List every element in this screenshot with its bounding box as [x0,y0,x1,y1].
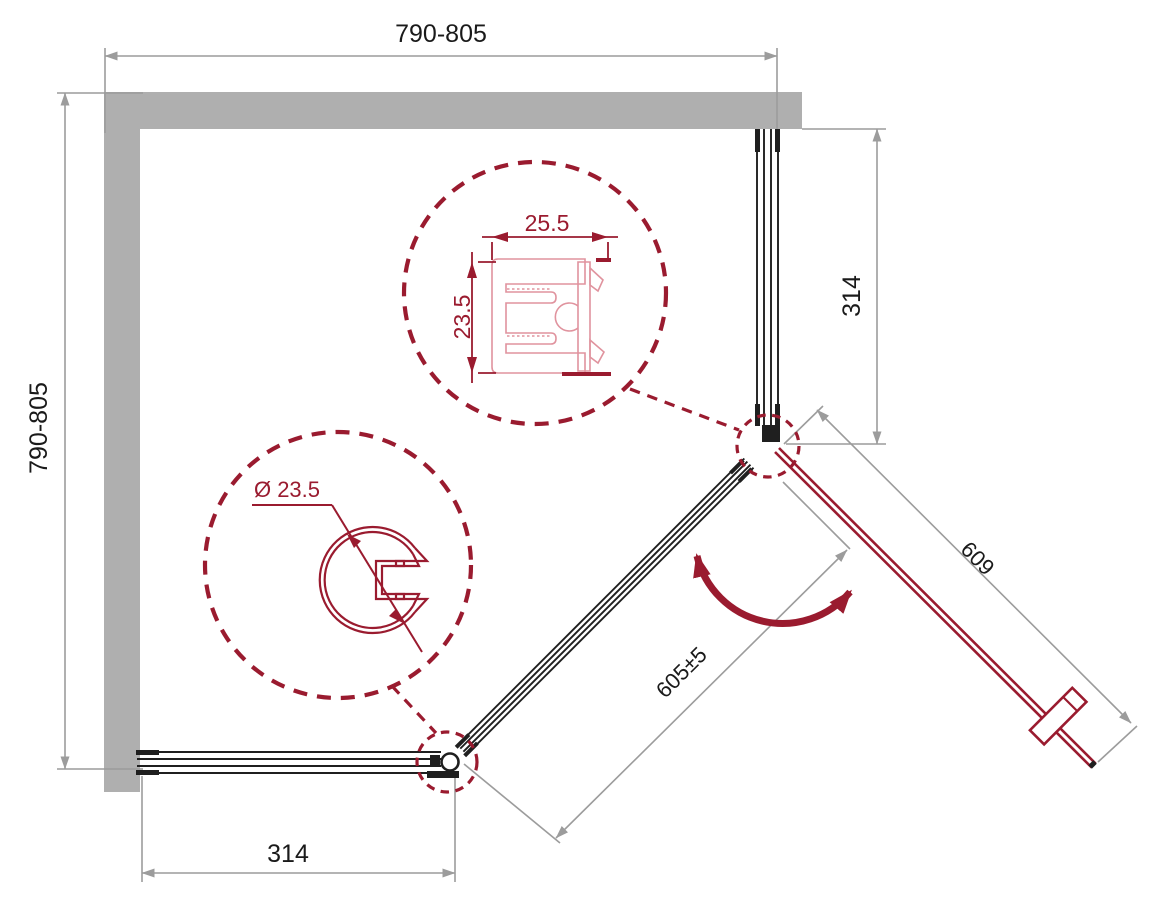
fixed-panel-diagonal [455,457,755,757]
dimension-right-panel: 314 [786,129,886,444]
fixed-panel-right [755,129,780,442]
extension-line [1098,726,1137,762]
detail-circle-round-profile: Ø 23.5 [205,432,471,698]
door-end-cap [1088,760,1096,768]
panel-profile-line [466,468,753,755]
wall-top [104,92,802,129]
detail-leader-bottom [392,686,436,733]
panel-profile-line [457,458,744,745]
dimension-label-right-panel: 314 [838,275,866,317]
pivot-bracket [427,771,459,778]
glass-clamp-strip [578,262,590,371]
dimension-entry-opening: 605±5 [464,482,850,843]
profile-width-label: 25.5 [525,210,570,236]
pivot-mount-block [430,755,440,765]
panel-end-cap [755,129,760,152]
shower-enclosure-plan-svg: 790-805 790-805 314 314 605±5 609 [0,0,1163,900]
slot-tooth [396,594,404,599]
arrowhead [467,357,477,373]
wall-left [104,92,140,792]
panel-end-cap [775,129,780,152]
dimension-label-bottom-panel: 314 [267,840,309,868]
detail-bubble-outline [205,432,471,698]
round-profile-slot-outer [376,548,427,612]
clamp-fin-bottom [590,340,604,363]
detail-circle-wall-profile: 25.5 23.5 [404,162,666,424]
fixed-panel-bottom [136,750,459,778]
dimension-label-left-depth: 790-805 [25,382,53,474]
arrowhead [592,232,608,242]
dimension-label-door-width: 609 [956,537,1000,581]
panel-end-cap [136,750,159,755]
wall-profile-cross-section [492,259,585,373]
door-swing-arrow [697,556,850,623]
arrowhead [467,262,477,278]
panel-glass-line [460,462,747,749]
dimension-line [556,550,847,838]
arrowhead [492,232,508,242]
detail-bubble-outline [404,162,666,424]
pivot-circle-glyph [442,754,459,771]
technical-drawing-canvas: 790-805 790-805 314 314 605±5 609 [0,0,1163,900]
extension-line [464,764,560,843]
profile-depth-label: 23.5 [449,295,475,340]
round-profile-diameter-label: Ø 23.5 [254,477,320,502]
walls [104,92,802,792]
clamp-fin-top [590,268,603,291]
slot-tooth [396,561,404,566]
corner-pivot-block [762,425,780,442]
clamp-c-clip [555,303,578,331]
dimension-label-top-width: 790-805 [395,20,487,48]
round-profile-inner [325,532,413,628]
door-panel [763,422,1123,781]
dimension-door-width: 609 [784,406,1137,762]
panel-end-cap [136,770,159,775]
dimension-bottom-panel: 314 [142,776,455,882]
panel-glass-line [463,465,750,752]
detail-leader-top [630,389,739,430]
